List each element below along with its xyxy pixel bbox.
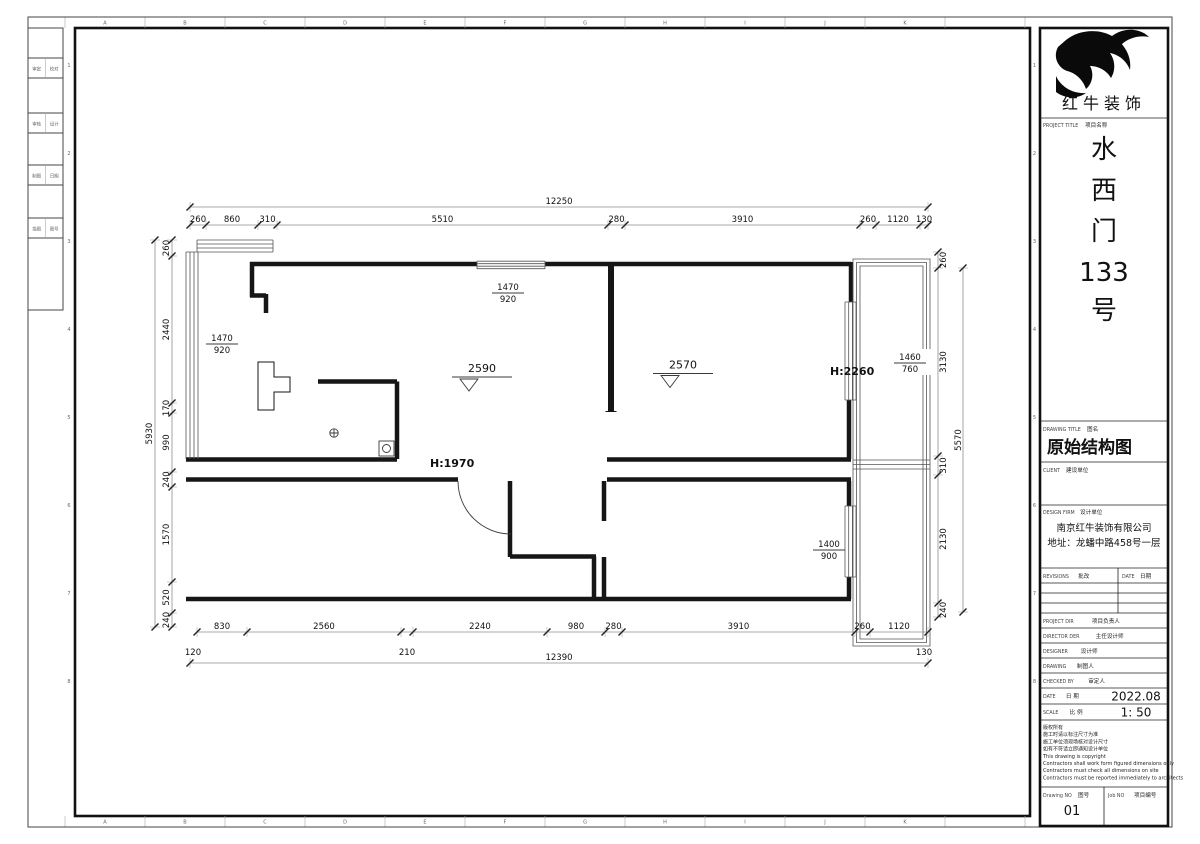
window-height: 900	[821, 552, 837, 562]
window-right-upper-icon	[845, 302, 856, 400]
staff-row-label-cn: 审定人	[1088, 677, 1105, 685]
copyright-note-line: Contractors shall work form figured dime…	[1043, 761, 1174, 767]
date-col-label-cn: 日期	[1140, 573, 1152, 580]
dimension-label: 170	[162, 400, 172, 416]
staff-row-label-cn: 日 期	[1066, 693, 1079, 700]
window-labels: 1470 920 1470 920 1460 760 1400 900	[206, 283, 933, 562]
staff-row-label-en: CHECKED BY	[1043, 679, 1074, 685]
window-width: 1470	[497, 283, 519, 293]
staff-row-label-cn: 项目负责人	[1092, 617, 1120, 625]
copyright-note-line: Contractors must be reported immediately…	[1043, 775, 1183, 781]
level-value: 2570	[669, 359, 697, 372]
dimension-label: 1120	[887, 215, 909, 225]
dimension-label: 12390	[545, 653, 572, 663]
client-label-cn: 建设单位	[1066, 466, 1089, 474]
grid-letter: J	[823, 21, 825, 27]
stamp-label: 日期	[50, 174, 59, 180]
staff-row-label-cn: 制图人	[1077, 662, 1094, 670]
copyright-note-line: 施工时请以标注尺寸为准	[1043, 731, 1098, 738]
dimension-label: 260	[939, 252, 949, 268]
grid-number: 8	[67, 679, 70, 685]
stamp-label: 描图	[32, 226, 41, 233]
level-triangle-icon	[460, 379, 478, 391]
revisions-label-en: REVISIONS	[1043, 574, 1069, 580]
window-top-icon	[477, 261, 545, 269]
drawing-no-label-cn: 图号	[1078, 791, 1090, 799]
dimension-label: 990	[162, 434, 172, 450]
pipe-icon	[383, 445, 391, 453]
dimension-label: 5510	[432, 215, 454, 225]
dimension-label: 210	[399, 648, 415, 658]
revisions-label-cn: 批改	[1078, 572, 1090, 580]
dimension-label: 520	[162, 589, 172, 605]
project-name-char: 133	[1079, 258, 1129, 288]
floor-plan: 2590 2570 H:2260 H:1970 1470 920 1470 92…	[145, 197, 968, 668]
grid-number: 1	[1033, 63, 1036, 69]
glazing	[186, 240, 930, 646]
design-firm-name: 南京红牛装饰有限公司	[1056, 522, 1151, 534]
date-col-label-en: DATE	[1122, 574, 1134, 580]
grid-letter: E	[423, 820, 426, 826]
door-arc-icon	[458, 481, 511, 534]
duct-box-icon	[379, 441, 394, 456]
grid-number: 6	[1033, 503, 1036, 509]
dimension-label: 280	[608, 215, 624, 225]
window-width: 1400	[818, 540, 840, 550]
project-name-char: 门	[1091, 217, 1117, 247]
grid-letter: A	[103, 21, 107, 27]
grid-letter: F	[504, 820, 507, 826]
design-firm-address: 地址：龙蟠中路458号一层	[1047, 537, 1160, 549]
cad-canvas: 审定校对审核设计制图日期描图图号 AABBCCDDEEFFGGHHIIJJKK1…	[0, 0, 1200, 844]
dimension-label: 830	[214, 622, 230, 632]
ceiling-height-label: H:2260	[830, 365, 875, 378]
step-column	[258, 362, 290, 410]
staff-row-label-cn: 比 例	[1070, 708, 1083, 716]
dimension-label: 2130	[939, 528, 949, 550]
design-firm-label-en: DESIGN FIRM	[1043, 510, 1075, 516]
grid-number: 4	[1033, 327, 1036, 333]
dimension-label: 5930	[145, 423, 155, 445]
grid-letter: C	[263, 820, 267, 826]
design-firm-label-cn: 设计单位	[1080, 508, 1103, 516]
staff-row-label-en: DATE	[1043, 694, 1055, 700]
stamp-label: 设计	[50, 121, 59, 128]
grid-letter: A	[103, 820, 107, 826]
balcony-right-glazing	[853, 259, 930, 646]
grid-letter: E	[423, 21, 426, 27]
staff-row-label-en: DRAWING	[1043, 664, 1067, 670]
window-width: 1460	[899, 353, 921, 363]
grid-number: 4	[67, 327, 70, 333]
grid-number: 7	[1033, 591, 1036, 597]
window-height: 920	[214, 346, 230, 356]
staff-row-label-en: PROJECT DIR	[1043, 619, 1074, 625]
drawing-sheet: 审定校对审核设计制图日期描图图号 AABBCCDDEEFFGGHHIIJJKK1…	[0, 0, 1200, 844]
brand-logo: 红牛装饰	[1056, 30, 1149, 113]
dimension-label: 2240	[469, 622, 491, 632]
level-triangle-icon	[661, 376, 679, 388]
grid-number: 2	[67, 151, 70, 157]
grid-number: 7	[67, 591, 70, 597]
project-name: 水西门133号	[1079, 135, 1129, 326]
stamp-label: 图号	[50, 227, 59, 233]
copyright-notes: 版权所有施工时请以标注尺寸为准施工单位须现场核对设计尺寸如有不符请立即通知设计单…	[1042, 724, 1183, 781]
sheet-frame: 审定校对审核设计制图日期描图图号 AABBCCDDEEFFGGHHIIJJKK1…	[28, 17, 1172, 827]
walls	[186, 262, 851, 599]
dimension-label: 260	[860, 215, 876, 225]
grid-number: 5	[1033, 415, 1036, 421]
dimension-label: 5570	[954, 429, 964, 451]
dimension-label: 260	[190, 215, 206, 225]
dimension-label: 130	[916, 215, 932, 225]
grid-number: 3	[1033, 239, 1036, 245]
dimension-label: 310	[939, 457, 949, 473]
dimension-label: 240	[162, 471, 172, 487]
level-symbols: 2590 2570 H:2260 H:1970	[430, 359, 875, 471]
dimension-label: 3130	[939, 351, 949, 373]
project-title-label-cn: 项目名称	[1085, 121, 1108, 129]
grid-letter: G	[583, 820, 587, 826]
window-right-lower-icon	[845, 506, 856, 577]
dimension-label: 3910	[732, 215, 754, 225]
drawing-title-label-cn: 图名	[1087, 425, 1098, 433]
staff-row-value: 2022.08	[1111, 690, 1161, 704]
job-no-label-cn: 项目编号	[1134, 791, 1157, 799]
grid-letter: B	[183, 820, 187, 826]
dimension-label: 3910	[728, 622, 750, 632]
grid-number: 5	[67, 415, 70, 421]
grid-letter: D	[343, 21, 347, 27]
outer-border	[28, 17, 1172, 827]
dimension-label: 1570	[162, 524, 172, 546]
dimension-label: 260	[854, 622, 870, 632]
dimension-label: 1120	[888, 622, 910, 632]
staff-row-label-cn: 设计师	[1081, 647, 1098, 655]
grid-letter: H	[663, 820, 667, 826]
dimension-label: 2440	[162, 319, 172, 341]
staff-row-label-en: DESIGNER	[1043, 649, 1069, 655]
brand-name: 红牛装饰	[1062, 94, 1146, 113]
grid-number: 6	[67, 503, 70, 509]
stamp-label: 校对	[50, 66, 59, 73]
grid-number: 3	[67, 239, 70, 245]
project-name-char: 号	[1091, 296, 1117, 326]
dimension-label: 310	[259, 215, 275, 225]
drawing-title-label-en: DRAWING TITLE	[1043, 427, 1081, 433]
grid-letter: I	[744, 21, 745, 27]
dimension-label: 130	[916, 648, 932, 658]
copyright-note-line: Contractors must check all dimensions on…	[1043, 768, 1159, 774]
dimension-label: 12250	[545, 197, 572, 207]
drawing-frame	[75, 28, 1030, 816]
staff-row-label-en: SCALE	[1043, 710, 1058, 716]
dimension-label: 2560	[313, 622, 335, 632]
border-grid: AABBCCDDEEFFGGHHIIJJKK1122334455667788	[65, 18, 1036, 827]
dimension-label: 260	[162, 240, 172, 256]
dimension-label: 280	[605, 622, 621, 632]
grid-letter: C	[263, 21, 267, 27]
stamp-label: 审核	[32, 121, 41, 128]
grid-number: 2	[1033, 151, 1036, 157]
dimension-label: 980	[568, 622, 584, 632]
project-name-char: 水	[1091, 135, 1117, 165]
grid-letter: F	[504, 21, 507, 27]
drawing-no: 01	[1064, 804, 1081, 819]
grid-number: 1	[67, 63, 70, 69]
grid-letter: K	[903, 21, 907, 27]
project-name-char: 西	[1091, 176, 1117, 206]
copyright-note-line: 版权所有	[1043, 724, 1063, 731]
grid-letter: B	[183, 21, 187, 27]
client-label-en: CLIENT	[1043, 468, 1060, 474]
grid-letter: H	[663, 21, 667, 27]
window-height: 760	[902, 365, 918, 375]
staff-row-label-cn: 主任设计师	[1096, 632, 1124, 640]
grid-number: 8	[1033, 679, 1036, 685]
copyright-note-line: This drawing is copyright	[1042, 754, 1106, 760]
dimension-label: 860	[224, 215, 240, 225]
window-height: 920	[500, 295, 516, 305]
grid-letter: G	[583, 21, 587, 27]
copyright-note-line: 如有不符请立即通知设计单位	[1043, 746, 1108, 753]
dimension-label: 240	[162, 612, 172, 628]
project-title-label-en: PROJECT TITLE	[1043, 123, 1078, 129]
staff-row-label-en: DIRECTOR DER	[1043, 634, 1080, 640]
fixtures	[330, 429, 395, 457]
window-width: 1470	[211, 334, 233, 344]
dimension-label: 240	[939, 602, 949, 618]
grid-letter: J	[823, 820, 825, 826]
stamp-cells: 审定校对审核设计制图日期描图图号	[28, 58, 63, 238]
grid-letter: K	[903, 820, 907, 826]
drawing-title: 原始结构图	[1047, 437, 1132, 458]
stamp-label: 制图	[32, 173, 41, 180]
title-block: 红牛装饰 PROJECT TITLE 项目名称 水西门133号 DRAWING …	[1040, 28, 1183, 826]
grid-letter: D	[343, 820, 347, 826]
door-height-label: H:1970	[430, 457, 475, 470]
job-no-label-en: Job NO	[1107, 793, 1125, 799]
staff-row-value: 1: 50	[1121, 706, 1152, 720]
level-value: 2590	[468, 362, 496, 375]
drawing-no-label-en: Drawing NO	[1043, 793, 1072, 799]
grid-letter: I	[744, 820, 745, 826]
copyright-note-line: 施工单位须现场核对设计尺寸	[1043, 738, 1108, 745]
stamp-label: 审定	[32, 66, 41, 73]
dimension-label: 120	[185, 648, 201, 658]
